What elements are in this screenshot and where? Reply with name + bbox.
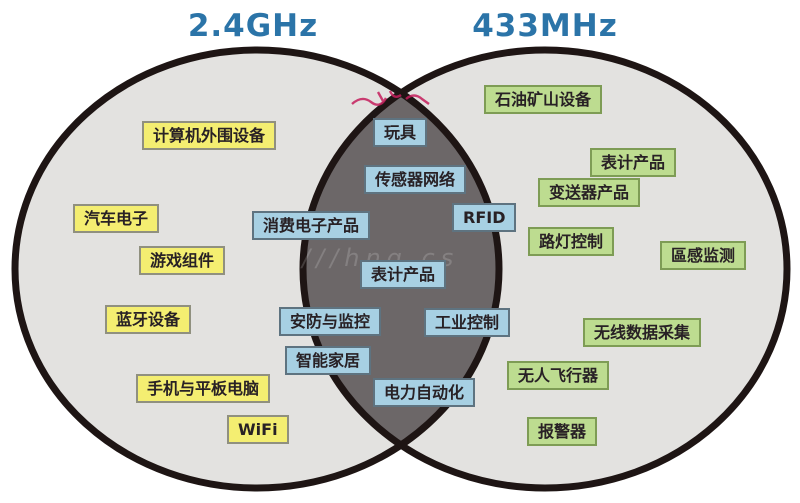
label-area-sensing-monitoring: 區感监测 xyxy=(660,241,746,270)
label-meter-products-right: 表计产品 xyxy=(590,148,676,177)
label-consumer-electronics: 消费电子产品 xyxy=(252,211,370,240)
label-smart-home: 智能家居 xyxy=(285,346,371,375)
label-sensor-networks: 传感器网络 xyxy=(364,165,466,194)
label-uav: 无人飞行器 xyxy=(507,361,609,390)
label-wireless-data-acquisition: 无线数据采集 xyxy=(583,318,701,347)
label-oil-mining-equipment: 石油矿山设备 xyxy=(484,85,602,114)
label-toys: 玩具 xyxy=(373,118,427,147)
label-bluetooth-devices: 蓝牙设备 xyxy=(105,305,191,334)
label-transmitter-products: 变送器产品 xyxy=(538,178,640,207)
label-computer-peripherals: 计算机外围设备 xyxy=(142,121,276,150)
label-industrial-control: 工业控制 xyxy=(424,308,510,337)
label-rfid: RFID xyxy=(452,203,516,232)
label-security-surveillance: 安防与监控 xyxy=(279,307,381,336)
label-alarm: 报警器 xyxy=(527,417,597,446)
label-game-components: 游戏组件 xyxy=(139,246,225,275)
label-streetlight-control: 路灯控制 xyxy=(528,227,614,256)
left-circle-title: 2.4GHz xyxy=(163,8,343,44)
venn-diagram: ///hng.cs 2.4GHz 433MHz 计算机外围设备 汽车电子 游戏组… xyxy=(0,0,800,503)
label-wifi: WiFi xyxy=(227,415,289,444)
label-meter-products-overlap: 表计产品 xyxy=(360,260,446,289)
label-automotive-electronics: 汽车电子 xyxy=(73,204,159,233)
label-power-automation: 电力自动化 xyxy=(373,378,475,407)
right-circle-title: 433MHz xyxy=(455,8,635,44)
label-phones-tablets: 手机与平板电脑 xyxy=(136,374,270,403)
